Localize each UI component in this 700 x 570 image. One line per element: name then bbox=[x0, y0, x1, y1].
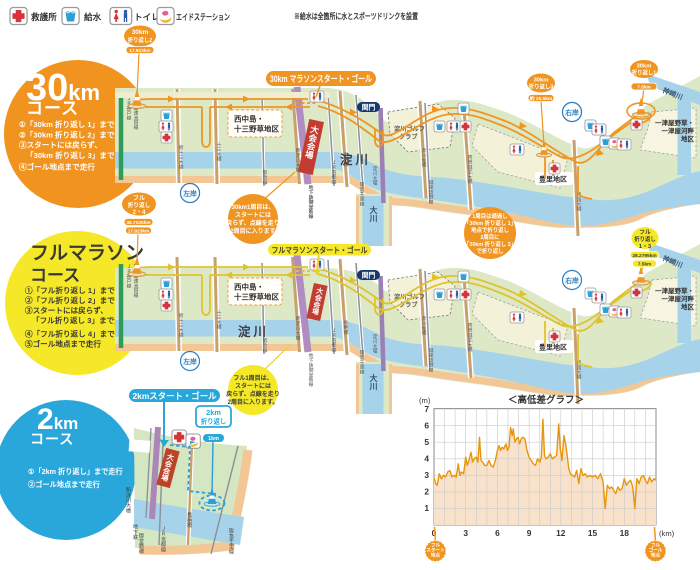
svg-text:2kmスタート・ゴール: 2kmスタート・ゴール bbox=[133, 390, 217, 401]
svg-text:フル: フル bbox=[133, 195, 145, 202]
svg-text:2km: 2km bbox=[206, 408, 221, 417]
svg-text:「30km 折り返し 3」まで走行: 「30km 折り返し 3」まで走行 bbox=[26, 150, 130, 160]
svg-text:阪急千里線: 阪急千里線 bbox=[228, 527, 234, 555]
svg-text:①「フル折り返し 1」まで走行: ①「フル折り返し 1」まで走行 bbox=[25, 285, 130, 295]
svg-text:3: 3 bbox=[463, 528, 468, 538]
svg-text:スタートには: スタートには bbox=[235, 211, 271, 219]
svg-text:で折り返し: で折り返し bbox=[477, 247, 504, 255]
svg-text:15: 15 bbox=[588, 528, 598, 538]
svg-text:淀川: 淀川 bbox=[340, 152, 371, 167]
svg-text:エイドステーション: エイドステーション bbox=[176, 12, 230, 22]
svg-text:フル1周目は、: フル1周目は、 bbox=[233, 374, 272, 382]
svg-text:淀川: 淀川 bbox=[238, 324, 269, 339]
svg-text:②「30km 折り返し 2」まで走行: ②「30km 折り返し 2」まで走行 bbox=[19, 130, 130, 140]
svg-text:折り返し: 折り返し bbox=[128, 201, 151, 209]
svg-text:2周目に入ります: 2周目に入ります bbox=[230, 227, 275, 235]
svg-text:30km: 30km bbox=[534, 78, 549, 84]
svg-text:②ゴール地点まで走行: ②ゴール地点まで走行 bbox=[28, 480, 101, 489]
svg-text:救護所: 救護所 bbox=[31, 11, 57, 22]
svg-text:折り返し2: 折り返し2 bbox=[128, 36, 153, 44]
svg-text:フル: フル bbox=[639, 229, 651, 236]
svg-text:7: 7 bbox=[424, 404, 429, 414]
svg-text:18: 18 bbox=[620, 528, 630, 538]
svg-text:17.923km: 17.923km bbox=[129, 48, 151, 54]
svg-text:地点: 地点 bbox=[431, 552, 441, 559]
svg-text:折り返し: 折り返し bbox=[634, 235, 656, 243]
svg-text:⑤ゴール地点まで走行: ⑤ゴール地点まで走行 bbox=[25, 339, 101, 349]
svg-text:4: 4 bbox=[424, 454, 429, 464]
svg-text:フルマラソン: フルマラソン bbox=[30, 243, 144, 264]
svg-text:※給水は全箇所に水とスポーツドリンクを設置: ※給水は全箇所に水とスポーツドリンクを設置 bbox=[294, 11, 418, 21]
svg-text:御堂筋線: 御堂筋線 bbox=[138, 532, 144, 555]
svg-text:1・3: 1・3 bbox=[639, 244, 652, 250]
svg-text:コース: コース bbox=[30, 431, 74, 447]
svg-text:3: 3 bbox=[424, 470, 429, 480]
svg-text:スタートには: スタートには bbox=[235, 382, 271, 390]
svg-text:6: 6 bbox=[495, 528, 500, 538]
svg-text:②「フル折り返し 2」まで走行: ②「フル折り返し 2」まで走行 bbox=[25, 295, 130, 305]
svg-text:①「2km 折り返し」まで走行: ①「2km 折り返し」まで走行 bbox=[28, 467, 124, 476]
svg-text:2: 2 bbox=[424, 487, 429, 497]
svg-text:地点: 地点 bbox=[651, 552, 661, 559]
svg-text:38.7025km: 38.7025km bbox=[126, 220, 150, 226]
svg-text:「30km 折り返し 1」: 「30km 折り返し 1」 bbox=[464, 219, 516, 227]
svg-text:「30km 折り返し 3」: 「30km 折り返し 3」 bbox=[464, 240, 516, 248]
svg-text:30km マラソンスタート・ゴール: 30km マラソンスタート・ゴール bbox=[270, 73, 372, 84]
svg-text:折り返し: 折り返し bbox=[201, 417, 227, 426]
svg-text:給水: 給水 bbox=[84, 11, 102, 22]
svg-text:7.5km: 7.5km bbox=[637, 85, 651, 91]
svg-text:戻らず、点線を走り: 戻らず、点線を走り bbox=[225, 219, 279, 227]
svg-text:トイレ: トイレ bbox=[134, 12, 160, 22]
svg-text:1周目は通過し: 1周目は通過し bbox=[472, 212, 507, 220]
svg-text:9: 9 bbox=[527, 528, 532, 538]
svg-text:(km): (km) bbox=[659, 529, 675, 538]
svg-text:折り返し1: 折り返し1 bbox=[632, 69, 657, 77]
svg-text:コース: コース bbox=[26, 99, 79, 118]
svg-text:約 25.5km: 約 25.5km bbox=[530, 95, 552, 102]
svg-text:5: 5 bbox=[424, 437, 429, 447]
svg-text:28.2795km: 28.2795km bbox=[632, 253, 656, 259]
svg-text:6: 6 bbox=[424, 421, 429, 431]
svg-text:＜高低差グラフ＞: ＜高低差グラフ＞ bbox=[508, 394, 584, 406]
svg-text:1: 1 bbox=[424, 503, 429, 513]
svg-text:コース: コース bbox=[30, 266, 80, 285]
svg-text:③スタートには戻らず、: ③スタートには戻らず、 bbox=[25, 305, 108, 315]
svg-text:2・4: 2・4 bbox=[133, 210, 146, 216]
svg-text:地点で折り返し: 地点で折り返し bbox=[471, 226, 509, 234]
svg-text:③スタートには戻らず、: ③スタートには戻らず、 bbox=[19, 140, 102, 150]
svg-text:1km: 1km bbox=[208, 436, 219, 442]
svg-text:12: 12 bbox=[556, 528, 566, 538]
svg-text:2周目に入ります。: 2周目に入ります。 bbox=[228, 398, 279, 406]
svg-text:戻らず、点線を走り: 戻らず、点線を走り bbox=[225, 390, 279, 398]
svg-text:30km: 30km bbox=[132, 29, 149, 36]
svg-text:30km: 30km bbox=[637, 64, 652, 70]
svg-text:④ゴール地点まで走行: ④ゴール地点まで走行 bbox=[19, 162, 95, 172]
svg-text:①「30km 折り返し 1」まで走行: ①「30km 折り返し 1」まで走行 bbox=[19, 119, 130, 129]
svg-text:④「フル折り返し 4」まで走行: ④「フル折り返し 4」まで走行 bbox=[25, 329, 130, 339]
svg-text:フルマラソンスタート・ゴール: フルマラソンスタート・ゴール bbox=[272, 245, 368, 255]
svg-text:ＪＲ京都線: ＪＲ京都線 bbox=[160, 526, 166, 552]
svg-text:2周目に: 2周目に bbox=[480, 233, 499, 241]
svg-text:17.923km: 17.923km bbox=[128, 229, 150, 235]
svg-text:30km1周目は、: 30km1周目は、 bbox=[232, 203, 275, 211]
svg-text:7.5km: 7.5km bbox=[638, 262, 652, 268]
svg-text:折り返し3: 折り返し3 bbox=[529, 83, 554, 91]
svg-text:長柄橋: 長柄橋 bbox=[186, 512, 192, 529]
svg-text:新淀川大橋: 新淀川大橋 bbox=[125, 486, 131, 515]
